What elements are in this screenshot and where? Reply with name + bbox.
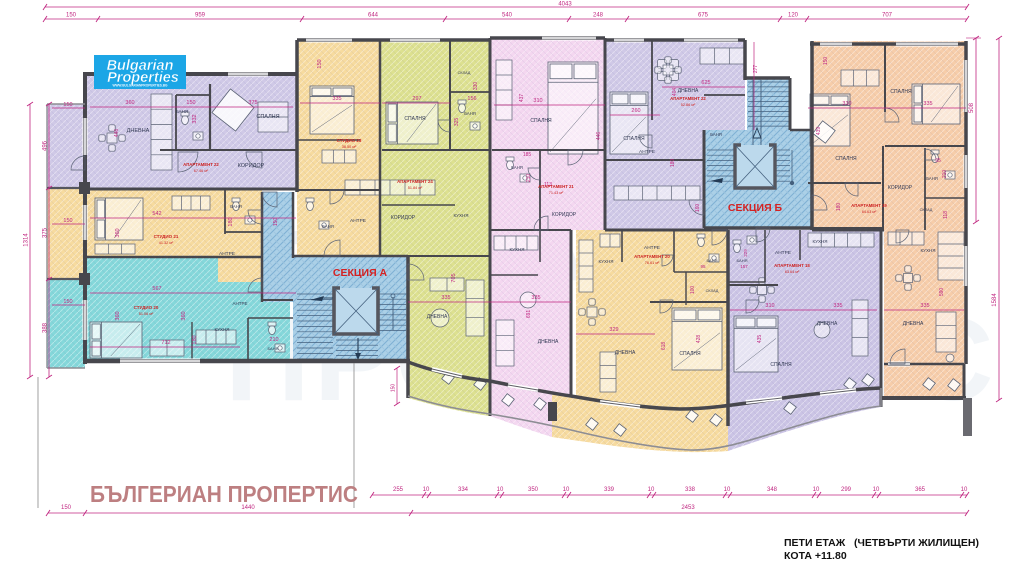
svg-text:180: 180 xyxy=(836,203,842,212)
svg-text:185: 185 xyxy=(523,152,532,158)
svg-text:439: 439 xyxy=(816,127,822,136)
svg-text:388: 388 xyxy=(43,322,49,333)
svg-text:348: 348 xyxy=(767,487,778,493)
svg-text:71.43 м²: 71.43 м² xyxy=(549,191,564,195)
svg-text:180: 180 xyxy=(192,335,198,344)
svg-text:АПАРТАМЕНТ 19: АПАРТАМЕНТ 19 xyxy=(851,203,887,208)
svg-text:118: 118 xyxy=(943,211,949,219)
svg-text:299: 299 xyxy=(841,487,852,493)
svg-text:38.50 м²: 38.50 м² xyxy=(342,145,357,149)
svg-text:10: 10 xyxy=(724,487,731,493)
svg-text:БАНЯ: БАНЯ xyxy=(268,346,279,351)
svg-text:СТУДИО 20: СТУДИО 20 xyxy=(134,305,159,310)
svg-text:180: 180 xyxy=(228,217,234,226)
svg-text:210: 210 xyxy=(269,337,278,343)
svg-text:БАНЯ: БАНЯ xyxy=(737,258,748,263)
svg-text:150: 150 xyxy=(63,299,72,305)
svg-text:ДНЕВНА: ДНЕВНА xyxy=(615,350,636,356)
svg-text:СПАЛНЯ: СПАЛНЯ xyxy=(404,116,426,122)
svg-text:360: 360 xyxy=(125,100,134,106)
svg-text:310: 310 xyxy=(533,98,542,104)
svg-text:644: 644 xyxy=(368,13,379,19)
svg-text:180: 180 xyxy=(670,159,676,168)
svg-text:10: 10 xyxy=(648,487,655,493)
svg-text:ДНЕВНА: ДНЕВНА xyxy=(903,321,924,327)
svg-text:496: 496 xyxy=(43,140,49,151)
svg-text:10: 10 xyxy=(873,487,880,493)
svg-text:СТУДИО 21: СТУДИО 21 xyxy=(154,234,179,239)
svg-text:51.84 м²: 51.84 м² xyxy=(408,186,423,190)
svg-text:БАНЯ: БАНЯ xyxy=(710,132,722,137)
svg-text:335: 335 xyxy=(441,295,450,301)
svg-text:СПАЛНЯ: СПАЛНЯ xyxy=(835,156,857,162)
svg-text:95: 95 xyxy=(700,264,706,269)
svg-text:335: 335 xyxy=(923,101,932,107)
svg-text:ДНЕВНА: ДНЕВНА xyxy=(678,88,699,94)
svg-text:63.64 м²: 63.64 м² xyxy=(785,270,800,274)
svg-text:150: 150 xyxy=(63,218,72,224)
svg-text:691: 691 xyxy=(526,310,532,319)
svg-text:255: 255 xyxy=(393,487,404,493)
svg-text:67.46 м²: 67.46 м² xyxy=(194,169,209,173)
svg-text:959: 959 xyxy=(195,13,206,19)
svg-text:АПАРТАМЕНТ 24: АПАРТАМЕНТ 24 xyxy=(397,179,433,184)
svg-text:160: 160 xyxy=(695,204,701,213)
svg-text:1314: 1314 xyxy=(24,233,30,247)
svg-text:156: 156 xyxy=(467,96,476,102)
svg-text:360: 360 xyxy=(115,228,121,237)
svg-text:КУХНЯ: КУХНЯ xyxy=(812,239,827,244)
svg-text:95: 95 xyxy=(935,158,941,164)
svg-text:260: 260 xyxy=(631,108,640,114)
svg-text:707: 707 xyxy=(882,13,893,19)
svg-text:51.06 м²: 51.06 м² xyxy=(139,312,154,316)
svg-text:229: 229 xyxy=(743,249,748,257)
svg-text:210: 210 xyxy=(942,170,948,179)
svg-text:АПАРТАМЕНТ 20: АПАРТАМЕНТ 20 xyxy=(634,254,670,259)
svg-text:330: 330 xyxy=(473,82,479,91)
svg-text:335: 335 xyxy=(920,303,929,309)
svg-text:КУХНЯ: КУХНЯ xyxy=(453,213,468,218)
svg-text:АНТРЕ: АНТРЕ xyxy=(639,149,655,155)
svg-text:334: 334 xyxy=(458,487,469,493)
svg-text:428: 428 xyxy=(696,335,702,344)
svg-text:БАНЯ: БАНЯ xyxy=(707,258,718,263)
svg-text:335: 335 xyxy=(833,303,842,309)
svg-text:76.61 м²: 76.61 м² xyxy=(645,261,660,265)
svg-text:435: 435 xyxy=(757,335,763,344)
svg-text:АПАРТАМЕНТ 21: АПАРТАМЕНТ 21 xyxy=(538,184,574,189)
svg-text:150: 150 xyxy=(273,218,279,227)
svg-text:10: 10 xyxy=(497,487,504,493)
svg-text:157: 157 xyxy=(740,264,748,269)
svg-text:АПАРТАМЕНТ 18: АПАРТАМЕНТ 18 xyxy=(774,263,810,268)
svg-text:БАНЯ: БАНЯ xyxy=(464,111,476,116)
svg-text:625: 625 xyxy=(701,80,710,86)
svg-text:375: 375 xyxy=(248,100,257,106)
svg-text:10: 10 xyxy=(813,487,820,493)
svg-text:335: 335 xyxy=(332,96,341,102)
svg-text:БАНЯ: БАНЯ xyxy=(926,176,938,181)
svg-text:84.63 м²: 84.63 м² xyxy=(862,210,877,214)
svg-text:705: 705 xyxy=(451,273,457,282)
svg-text:СЕКЦИЯ Б: СЕКЦИЯ Б xyxy=(728,202,783,214)
svg-text:150: 150 xyxy=(66,13,77,19)
svg-text:ДНЕВНА: ДНЕВНА xyxy=(538,339,559,345)
svg-text:АНТРЕ: АНТРЕ xyxy=(350,218,366,224)
svg-text:10: 10 xyxy=(423,487,430,493)
svg-text:АПАРТАМЕНТ 22: АПАРТАМЕНТ 22 xyxy=(670,96,706,101)
svg-text:339: 339 xyxy=(604,487,615,493)
svg-text:52.86 м²: 52.86 м² xyxy=(681,103,696,107)
svg-text:446: 446 xyxy=(596,132,602,141)
svg-text:СТУДИО 23: СТУДИО 23 xyxy=(337,138,362,143)
svg-text:446: 446 xyxy=(114,129,120,138)
svg-text:2453: 2453 xyxy=(681,505,695,511)
svg-text:ДНЕВНА: ДНЕВНА xyxy=(127,128,150,134)
svg-text:АНТРЕ: АНТРЕ xyxy=(219,251,235,257)
svg-text:150: 150 xyxy=(186,100,195,106)
svg-text:350: 350 xyxy=(528,487,539,493)
svg-text:41.32 м²: 41.32 м² xyxy=(159,241,174,245)
svg-text:ДНЕВНА: ДНЕВНА xyxy=(427,314,448,320)
svg-text:360: 360 xyxy=(115,311,121,320)
svg-text:БЪЛГЕРИАН ПРОПЕРТИС: БЪЛГЕРИАН ПРОПЕРТИС xyxy=(90,481,358,507)
svg-text:360: 360 xyxy=(181,311,187,320)
svg-text:150: 150 xyxy=(823,57,829,66)
svg-text:329: 329 xyxy=(609,327,618,333)
svg-text:120: 120 xyxy=(788,13,799,19)
svg-text:БАНЯ: БАНЯ xyxy=(511,165,523,170)
svg-text:542: 542 xyxy=(152,211,161,217)
svg-text:КОРИДОР: КОРИДОР xyxy=(238,163,265,169)
svg-text:1584: 1584 xyxy=(992,293,998,307)
svg-text:100: 100 xyxy=(690,286,696,295)
svg-text:ДНЕВНА: ДНЕВНА xyxy=(817,321,838,327)
svg-text:КОРИДОР: КОРИДОР xyxy=(888,185,913,191)
svg-text:СПАЛНЯ: СПАЛНЯ xyxy=(770,362,792,368)
svg-text:СПАЛНЯ: СПАЛНЯ xyxy=(530,118,552,124)
svg-text:4043: 4043 xyxy=(558,2,572,8)
svg-text:675: 675 xyxy=(698,13,709,19)
svg-text:КОРИДОР: КОРИДОР xyxy=(552,212,577,218)
svg-text:310: 310 xyxy=(842,101,851,107)
svg-text:КОРИДОР: КОРИДОР xyxy=(391,215,416,221)
svg-text:СКЛАД: СКЛАД xyxy=(706,289,719,293)
svg-text:КУХНЯ: КУХНЯ xyxy=(920,248,935,253)
svg-text:БАНЯ: БАНЯ xyxy=(322,224,334,229)
svg-text:335: 335 xyxy=(531,295,540,301)
svg-text:КУХНЯ: КУХНЯ xyxy=(598,259,613,264)
svg-text:КУХНЯ: КУХНЯ xyxy=(509,247,524,252)
svg-text:БАНЯ: БАНЯ xyxy=(176,109,188,114)
svg-text:210: 210 xyxy=(526,174,532,183)
svg-text:325: 325 xyxy=(454,118,460,127)
svg-text:150: 150 xyxy=(391,384,397,393)
svg-text:АНТРЕ: АНТРЕ xyxy=(775,250,791,256)
svg-text:ПЕТИ ЕТАЖ (ЧЕТВЪРТИ ЖИЛИЩЕН): ПЕТИ ЕТАЖ (ЧЕТВЪРТИ ЖИЛИЩЕН) xyxy=(784,537,979,549)
svg-text:150: 150 xyxy=(61,505,72,511)
svg-text:СПАЛНЯ: СПАЛНЯ xyxy=(623,136,645,142)
svg-text:10: 10 xyxy=(961,487,968,493)
svg-text:150: 150 xyxy=(317,59,323,68)
svg-text:СПАЛНЯ: СПАЛНЯ xyxy=(256,114,279,120)
svg-text:10: 10 xyxy=(563,487,570,493)
svg-text:СПАЛНЯ: СПАЛНЯ xyxy=(679,351,701,357)
svg-text:297: 297 xyxy=(412,96,421,102)
svg-text:712: 712 xyxy=(161,340,170,346)
svg-text:СПАЛНЯ: СПАЛНЯ xyxy=(890,89,912,95)
svg-text:АНТРЕ: АНТРЕ xyxy=(644,245,660,251)
svg-text:365: 365 xyxy=(915,487,926,493)
svg-text:310: 310 xyxy=(765,303,774,309)
svg-text:567: 567 xyxy=(152,286,161,292)
svg-text:СЕКЦИЯ А: СЕКЦИЯ А xyxy=(333,267,388,279)
svg-text:WWW.BULGARIANPROPERTIES.BG: WWW.BULGARIANPROPERTIES.BG xyxy=(112,84,168,88)
svg-text:338: 338 xyxy=(685,487,696,493)
svg-text:БАНЯ: БАНЯ xyxy=(230,204,242,209)
svg-text:540: 540 xyxy=(502,13,513,19)
svg-text:332: 332 xyxy=(192,114,198,123)
svg-text:АНТРЕ: АНТРЕ xyxy=(232,301,247,306)
svg-text:СКЛАД: СКЛАД xyxy=(458,71,471,75)
svg-text:618: 618 xyxy=(661,342,667,351)
svg-text:КОТА +11.80: КОТА +11.80 xyxy=(784,550,847,562)
svg-text:375: 375 xyxy=(43,227,49,238)
svg-text:150: 150 xyxy=(63,102,72,108)
svg-text:437: 437 xyxy=(519,94,525,103)
svg-text:248: 248 xyxy=(593,13,604,19)
svg-text:СКЛАД: СКЛАД xyxy=(920,208,933,212)
svg-text:АПАРТАМЕНТ 22: АПАРТАМЕНТ 22 xyxy=(183,162,219,167)
svg-text:508: 508 xyxy=(969,102,975,113)
svg-text:590: 590 xyxy=(939,288,945,297)
svg-text:КУХНЯ: КУХНЯ xyxy=(214,327,229,332)
